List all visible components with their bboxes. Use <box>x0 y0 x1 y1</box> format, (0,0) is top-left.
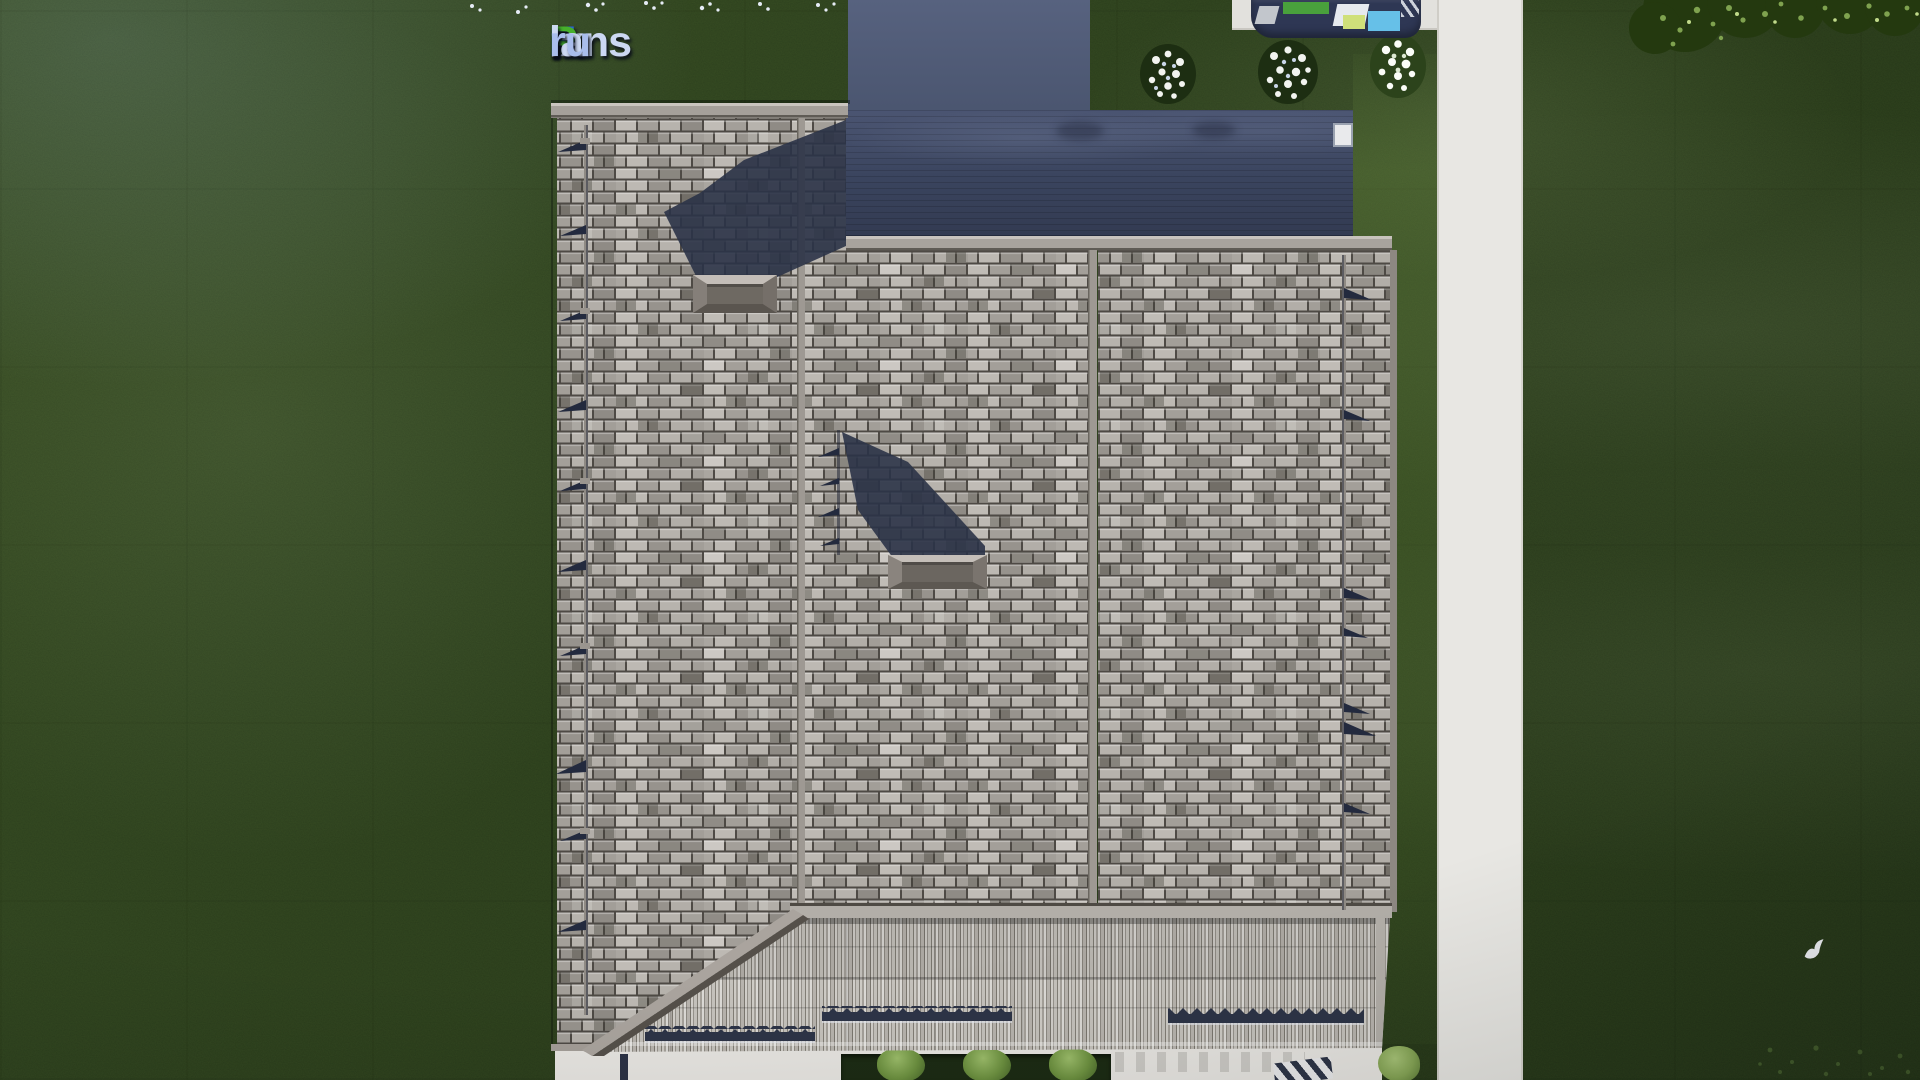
parked-car <box>1251 0 1421 38</box>
car-roof-rails <box>1401 0 1419 17</box>
flower-shrub <box>1368 30 1430 100</box>
roof-grass-shadow-left <box>551 103 553 1050</box>
ground-cover-speckles <box>1750 990 1920 1080</box>
car-cargo-green <box>1283 2 1329 14</box>
flower-shrub <box>1256 36 1322 108</box>
post-shadow <box>620 1054 628 1080</box>
chimney-center <box>888 555 987 589</box>
chimney-left <box>693 275 777 313</box>
house-roof <box>551 100 1401 1056</box>
watermark-part-5: ru <box>549 18 590 67</box>
bird-icon <box>1800 938 1834 968</box>
flower-shrub <box>1138 40 1200 108</box>
hedge-planter <box>841 1054 1111 1080</box>
driveway <box>848 0 1090 116</box>
tree-canopy-top-right <box>1625 0 1920 100</box>
car-cargo-cyan <box>1368 11 1400 31</box>
car-cargo-lime <box>1343 15 1365 29</box>
garden-path <box>1437 0 1523 1080</box>
aerial-site-render: FixPlans.ru <box>0 0 1920 1080</box>
